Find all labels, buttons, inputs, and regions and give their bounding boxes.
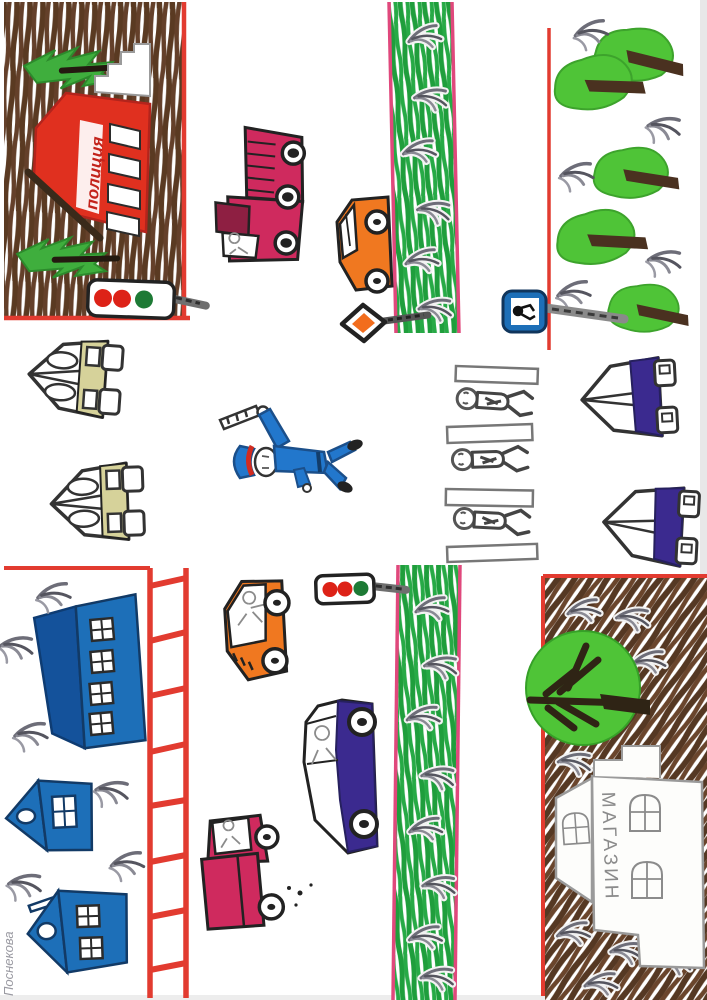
- cab-window: [222, 233, 259, 258]
- car-olive-front: [50, 463, 145, 542]
- speckle: [287, 886, 291, 890]
- round-tree-icon: [555, 208, 648, 266]
- raised-arm: [259, 409, 289, 448]
- car-orange-top: [337, 197, 392, 292]
- belt: [318, 452, 320, 472]
- pedestrian-crossing-sign: [503, 291, 624, 332]
- bird-sprig: [92, 779, 129, 810]
- pedestrian: [452, 446, 528, 473]
- shop-label: МАГАЗИН: [597, 791, 622, 902]
- traffic-light-top-left: [87, 280, 206, 320]
- window: [90, 712, 114, 735]
- median-strip-bottom: [393, 565, 460, 1000]
- round-window: [17, 809, 36, 824]
- median-strip-top: [389, 2, 459, 333]
- zebra-stripe: [447, 424, 533, 443]
- bird-sprig: [645, 249, 682, 279]
- small-house-2: [26, 888, 129, 973]
- red-ladder-crosswalk: [150, 568, 186, 998]
- bird-sprig: [5, 873, 41, 902]
- drawing-page: полиция: [0, 0, 707, 1000]
- small-house-1: [4, 778, 95, 854]
- bird-sprig: [558, 163, 594, 192]
- body: [58, 888, 129, 972]
- block-bottom-left: Поснекова: [0, 568, 186, 998]
- hub: [373, 219, 381, 225]
- ink-speckles: [287, 883, 313, 906]
- hub: [289, 150, 297, 156]
- speckle: [298, 891, 303, 896]
- zebra-crossing: [446, 366, 538, 562]
- ladder-rungs: [150, 578, 186, 970]
- hand: [303, 484, 311, 492]
- artist-signature: Поснекова: [1, 931, 16, 996]
- truck-crimson-top: [214, 127, 306, 264]
- arched-window: [630, 795, 660, 831]
- traffic-policeman: [220, 406, 364, 495]
- pedestrian: [456, 387, 532, 416]
- traffic-light-bottom: [315, 573, 406, 604]
- hub: [359, 820, 369, 828]
- block-top-right: [549, 20, 693, 350]
- car-purple-front: [602, 484, 700, 567]
- hub: [282, 240, 290, 246]
- zebra-stripe: [455, 366, 537, 384]
- window: [80, 937, 103, 959]
- block-bottom-right: МАГАЗИН: [526, 576, 707, 1000]
- round-window: [37, 923, 56, 940]
- grass: [389, 2, 459, 333]
- arched-window: [632, 862, 662, 898]
- truck-hood: [214, 202, 249, 235]
- car-olive-front: [27, 336, 124, 418]
- cab-window: [212, 818, 251, 854]
- truck-crimson-bottom: [200, 815, 284, 930]
- bird-sprig: [644, 115, 681, 146]
- car-purple-bottom: [304, 700, 377, 853]
- round-tree-icon: [593, 145, 682, 200]
- speckle: [294, 903, 297, 906]
- block-top-left: полиция: [4, 2, 207, 320]
- window: [90, 618, 114, 641]
- zebra-stripe: [447, 544, 537, 562]
- figure-head: [514, 307, 522, 315]
- bird-sprig: [0, 635, 33, 665]
- drawing-canvas: полиция: [0, 0, 707, 1000]
- window: [89, 682, 113, 705]
- bird-sprig: [12, 723, 48, 752]
- hub: [357, 718, 367, 726]
- apartment-building: [33, 594, 145, 750]
- bird-sprig: [108, 852, 145, 882]
- window: [90, 650, 114, 673]
- car-orange-bottom: [222, 579, 289, 681]
- window: [77, 905, 100, 927]
- round-tree-icon: [606, 280, 692, 336]
- pedestrian: [454, 507, 530, 535]
- hub: [373, 278, 381, 284]
- zebra-stripe: [446, 489, 533, 507]
- speckle: [309, 883, 312, 886]
- car-purple-front: [580, 357, 678, 440]
- truck-box: [201, 853, 264, 929]
- hub: [284, 194, 292, 200]
- arched-window: [562, 812, 590, 844]
